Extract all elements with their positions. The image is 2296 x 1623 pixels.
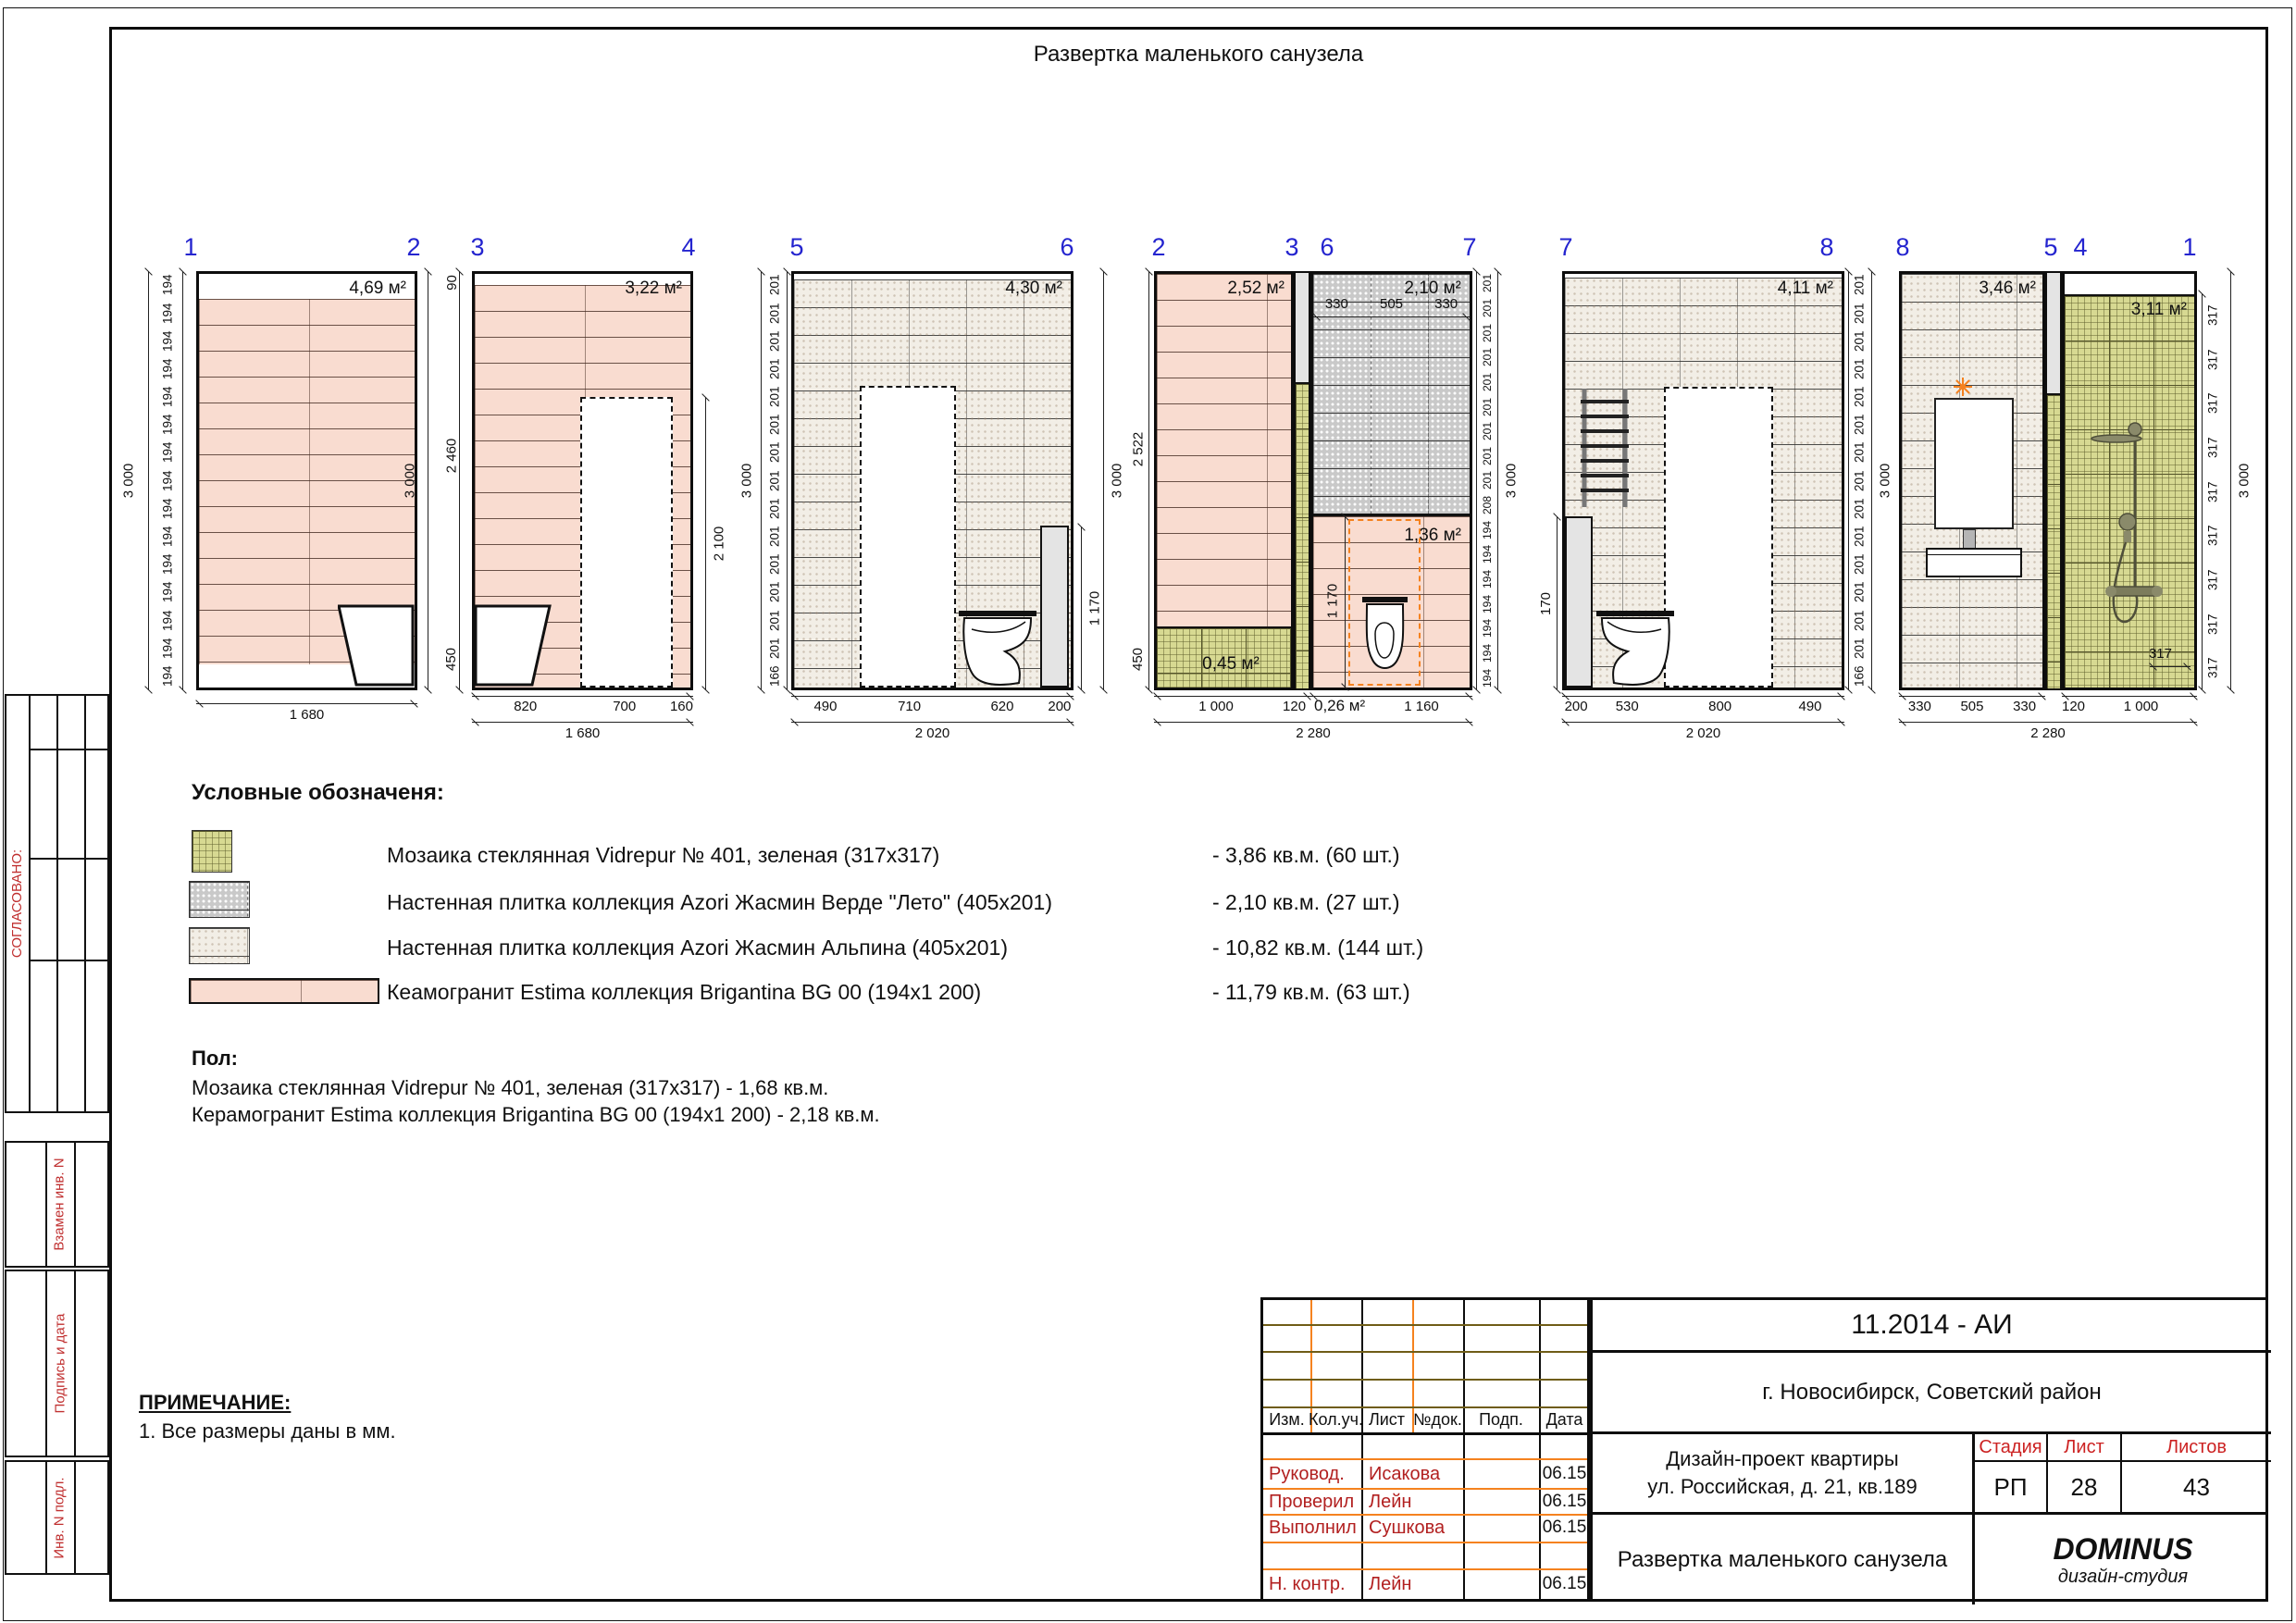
legend-item-qty: - 3,86 кв.м. (60 шт.) — [1212, 843, 1400, 868]
col-header: Лист — [1361, 1406, 1412, 1432]
dim-segments-row: 200 530 800 490 — [1562, 699, 1844, 714]
dim-label: 490 — [791, 699, 860, 714]
dim-segments-row: 120 1 000 — [2062, 699, 2197, 714]
stamp-grid-line — [84, 696, 86, 1111]
axis-label: 1 — [183, 233, 197, 262]
wall-elevation-8-5: 3,46 м² — [1899, 271, 2045, 690]
legend-swatch-mosaic — [192, 830, 232, 873]
axis-label: 8 — [1895, 233, 1909, 262]
dim-total-width: 2 020 — [1562, 725, 1844, 741]
legend-item-qty: - 11,79 кв.м. (63 шт.) — [1212, 980, 1410, 1005]
wall-elevation-7-8: 4,11 м² — [1562, 271, 1844, 690]
doc-code: 11.2014 - АИ — [1593, 1300, 2271, 1353]
basin-edge-line — [1928, 554, 2020, 555]
stage-value: РП — [1975, 1462, 2046, 1512]
titleblock-line-olive — [1263, 1379, 1587, 1381]
wall-elevation-4-1: 3,11 м² 317 — [2062, 271, 2197, 690]
dim-line — [2230, 271, 2231, 690]
stamp-grid-line — [29, 858, 107, 860]
wall-strip-return — [2045, 271, 2062, 690]
stamp-grid-line — [56, 696, 58, 1111]
faucet-icon — [1963, 529, 1976, 550]
tile-fill-mosaic — [2047, 395, 2060, 688]
titleblock-line-orange — [1263, 1458, 1587, 1460]
axis-label: 5 — [789, 233, 803, 262]
dim-label: 2 522 — [1128, 271, 1148, 627]
dim-line — [791, 722, 1074, 723]
axis-label: 4 — [2073, 233, 2087, 262]
dim-label: 330 — [1315, 296, 1359, 312]
stamp-box-label: Инв. N подл. — [45, 1462, 74, 1573]
dim-segments-row: 330 505 330 — [1315, 296, 1468, 312]
dim-segments-row: 1 000 120 — [1154, 699, 1310, 714]
area-label: 3,22 м² — [625, 279, 682, 299]
dim-label: 120 — [1278, 699, 1310, 714]
dim-line — [2202, 293, 2203, 690]
dim-label: 710 — [860, 699, 959, 714]
wall-elevation-1-2: 4,69 м² — [196, 271, 417, 690]
floor-header: Пол: — [192, 1047, 238, 1071]
dim-line — [1313, 316, 1470, 317]
stamp-grid-line — [74, 1462, 76, 1573]
stamp-box-podpis: Подпись и дата — [5, 1270, 109, 1457]
sign-date: 06.15 — [1539, 1518, 1590, 1538]
dim-label: 1 000 — [1154, 699, 1278, 714]
dim-label: 505 — [1941, 699, 2004, 714]
dim-line — [182, 271, 183, 690]
dim-line — [1345, 516, 1346, 688]
dim-label: 820 — [472, 699, 578, 714]
sign-role: Выполнил — [1269, 1518, 1357, 1539]
stamp-grid-line — [29, 960, 107, 961]
sign-role: Н. контр. — [1269, 1574, 1346, 1595]
dim-label: 1 170 — [1322, 516, 1343, 685]
legend-item-label: Кеамогранит Estima коллекция Brigantina … — [387, 980, 981, 1005]
area-label: 4,11 м² — [1778, 279, 1833, 299]
legend-swatch-alpina — [189, 927, 250, 964]
axis-label: 6 — [1060, 233, 1074, 262]
location: г. Новосибирск, Советский район — [1593, 1353, 2271, 1434]
dim-line — [472, 696, 693, 697]
dim-label: 450 — [442, 627, 461, 690]
dim-line — [761, 271, 762, 690]
dim-line — [2150, 666, 2191, 667]
dim-label: 200 — [1046, 699, 1074, 714]
legend-item-qty: - 2,10 кв.м. (27 шт.) — [1212, 890, 1400, 915]
dim-line — [472, 722, 693, 723]
sign-date: 06.15 — [1539, 1464, 1590, 1484]
area-label: 3,11 м² — [2131, 300, 2187, 320]
dim-segments: 2012012012012012012012012012081941941941… — [1479, 271, 1496, 690]
dim-line — [148, 271, 149, 690]
legend-swatch-estima — [189, 978, 379, 1004]
studio-subtitle: дизайн-студия — [2058, 1567, 2188, 1588]
dim-line — [791, 696, 1074, 697]
dim-line — [1154, 696, 1310, 697]
titleblock-line-orange — [1263, 1488, 1587, 1490]
sign-date: 06.15 — [1539, 1574, 1590, 1594]
col-header: Дата — [1539, 1406, 1590, 1432]
axis-label: 3 — [1285, 233, 1298, 262]
col-header: Кол.уч. — [1310, 1406, 1361, 1432]
dim-label: 505 — [1359, 296, 1425, 312]
wall-strip-return — [1294, 271, 1310, 690]
studio-cell: DOMINUS дизайн-студия — [1975, 1515, 2271, 1604]
door-opening — [860, 386, 956, 688]
stage-col-header: Листов — [2122, 1434, 2271, 1462]
dim-line — [2062, 696, 2197, 697]
duct-strip — [2047, 273, 2060, 395]
dim-total-height: 3 000 — [2234, 271, 2254, 690]
axis-label: 8 — [1819, 233, 1833, 262]
dim-label: 317 — [2149, 646, 2172, 662]
stamp-approved-box: СОГЛАСОВАНО: — [5, 694, 109, 1113]
dim-total-height: 3 000 — [1501, 271, 1521, 690]
dim-line — [1871, 271, 1872, 690]
titleblock-line — [2120, 1434, 2122, 1512]
dim-segments: 1941941941941941941941941941941941941941… — [159, 271, 176, 690]
washbasin-icon — [1926, 548, 2022, 577]
duct-panel — [1565, 516, 1593, 688]
approved-label: СОГЛАСОВАНО: — [6, 696, 29, 1111]
dim-label: 1 000 — [2085, 699, 2197, 714]
dim-segments: 2012012012012012012012012012012012012012… — [766, 271, 783, 690]
dim-line — [1899, 722, 2197, 723]
titleblock-line-olive — [1263, 1324, 1587, 1326]
wall-elevation-5-6: 4,30 м² — [791, 271, 1074, 690]
legend-swatch-verde — [189, 881, 250, 918]
wall-elevation-6-7: 2,10 м² 1,36 м² 330 505 330 1 170 — [1310, 271, 1472, 690]
dim-segments: 2012012012012012012012012012012012012012… — [1851, 271, 1868, 690]
dim-label: 490 — [1776, 699, 1844, 714]
wall-hung-toilet-icon — [957, 609, 1038, 687]
dim-label: 2 460 — [442, 284, 461, 627]
studio-name: DOMINUS — [2053, 1532, 2192, 1567]
dim-label: 450 — [1128, 627, 1148, 690]
area-label: 0,45 м² — [1185, 654, 1277, 675]
stamp-box-label: Подпись и дата — [45, 1271, 74, 1456]
axis-label: 4 — [681, 233, 695, 262]
duct-strip — [1296, 273, 1309, 384]
dim-segments-row: 820 700 160 — [472, 699, 693, 714]
dim-label: 530 — [1590, 699, 1664, 714]
dim-total-width: 2 280 — [1154, 725, 1472, 741]
col-header: №док. — [1412, 1406, 1463, 1432]
note-line: 1. Все размеры даны в мм. — [139, 1419, 396, 1443]
project-line: Дизайн-проект квартиры — [1666, 1445, 1898, 1473]
axis-label: 2 — [1151, 233, 1165, 262]
dim-line — [1899, 696, 2045, 697]
stamp-box-label: Взамен инв. N — [45, 1143, 74, 1266]
area-label: 4,30 м² — [1005, 279, 1062, 299]
legend-item-label: Настенная плитка коллекция Azori Жасмин … — [387, 890, 1052, 915]
door-opening — [580, 397, 673, 688]
sheet-name: Развертка маленького санузела — [1593, 1515, 1975, 1604]
titleblock-line — [1361, 1300, 1363, 1599]
dim-total-height: 3 000 — [737, 271, 757, 690]
sign-name: Исакова — [1369, 1464, 1440, 1485]
stamp-grid-line — [29, 696, 31, 1111]
titleblock-line-orange — [1263, 1542, 1587, 1543]
note-header: ПРИМЕЧАНИЕ: — [139, 1391, 291, 1415]
dim-line — [1557, 516, 1558, 690]
dim-duct-height: 170 — [1536, 516, 1557, 690]
titleblock-line — [1463, 1300, 1465, 1599]
dim-label: 620 — [959, 699, 1046, 714]
dim-line — [1081, 527, 1082, 690]
titleblock-line — [1539, 1300, 1541, 1599]
dim-segments: 317317317317317317317317317 — [2204, 293, 2221, 690]
legend-header: Условные обозначеня: — [192, 780, 444, 806]
stamp-grid-line — [74, 1143, 76, 1266]
axis-label: 3 — [470, 233, 484, 262]
titleblock-line-orange — [1263, 1568, 1587, 1570]
duct-panel — [1040, 526, 1069, 688]
dim-label: 120 — [2062, 699, 2085, 714]
dim-line — [196, 703, 417, 704]
towel-radiator-icon — [1579, 387, 1631, 509]
col-header: Подп. — [1463, 1406, 1539, 1432]
dim-line — [1497, 271, 1498, 690]
dim-line — [428, 271, 428, 690]
project-name: Дизайн-проект квартиры ул. Российская, д… — [1593, 1434, 1975, 1512]
dim-label: 1 160 — [1371, 699, 1472, 714]
shower-column-icon — [2091, 420, 2166, 651]
dim-label: 330 — [2004, 699, 2045, 714]
sign-date: 06.15 — [1539, 1492, 1590, 1512]
dim-total-width: 2 020 — [791, 725, 1074, 741]
dim-total-height: 3 000 — [118, 271, 139, 690]
stamp-box-inv: Инв. N подл. — [5, 1460, 109, 1575]
wall-hung-toilet-icon — [1595, 609, 1676, 687]
sheet-number: 28 — [2048, 1462, 2120, 1512]
titleblock-line — [1263, 1432, 1587, 1435]
dim-door-height: 2 100 — [709, 397, 729, 690]
titleblock-left-table: Изм. Кол.уч. Лист №док. Подп. Дата Руков… — [1260, 1297, 1590, 1602]
titleblock-right: 11.2014 - АИ г. Новосибирск, Советский р… — [1590, 1297, 2268, 1602]
stage-col-header: Лист — [2048, 1434, 2120, 1462]
dim-segments-row: 330 505 330 — [1899, 699, 2045, 714]
legend-item-label: Настенная плитка коллекция Azori Жасмин … — [387, 935, 1008, 960]
floor-line: Мозаика стеклянная Vidrepur № 401, зелен… — [192, 1074, 880, 1101]
dim-line — [1154, 722, 1472, 723]
sign-role: Проверил — [1269, 1492, 1354, 1513]
dim-label: 700 — [578, 699, 670, 714]
legend-item-label: Мозаика стеклянная Vidrepur № 401, зелен… — [387, 843, 939, 868]
area-label: 3,46 м² — [1979, 279, 2036, 299]
project-line: ул. Российская, д. 21, кв.189 — [1647, 1473, 1917, 1501]
sign-name: Сушкова — [1369, 1518, 1445, 1539]
legend-item-qty: - 10,82 кв.м. (144 шт.) — [1212, 935, 1423, 960]
dim-duct-height: 1 170 — [1085, 527, 1105, 690]
dim-total-width: 2 280 — [1899, 725, 2197, 741]
sign-name: Лейн — [1369, 1574, 1411, 1595]
sheets-total: 43 — [2122, 1462, 2271, 1512]
col-header: Изм. — [1263, 1406, 1310, 1432]
stamp-grid-line — [74, 1271, 76, 1456]
titleblock-line-orange — [1263, 1514, 1587, 1516]
dim-total-height: 3 000 — [1875, 271, 1895, 690]
wall-elevation-2-3: 2,52 м² 0,45 м² — [1154, 271, 1294, 690]
stamp-grid-line — [29, 749, 107, 750]
axis-label: 1 — [2182, 233, 2196, 262]
tile-fill-mosaic — [1296, 384, 1309, 688]
stamp-box-vzamen: Взамен инв. N — [5, 1141, 109, 1268]
page-title: Развертка маленького санузела — [1034, 42, 1364, 68]
dim-line — [787, 271, 788, 690]
dim-total-height: 3 000 — [1107, 271, 1127, 690]
dim-total-width: 1 680 — [472, 725, 693, 741]
area-label: 0,26 м² — [1314, 697, 1365, 715]
dim-total-height: 3 000 — [400, 271, 420, 690]
axis-label: 5 — [2043, 233, 2057, 262]
dim-label: 330 — [1899, 699, 1941, 714]
area-label: 4,69 м² — [349, 279, 406, 299]
dim-line — [1310, 696, 1472, 697]
dim-line — [1476, 271, 1477, 690]
dim-line — [1103, 271, 1104, 690]
titleblock-line-olive — [1263, 1351, 1587, 1353]
mirror — [1934, 398, 2014, 529]
sign-role: Руковод. — [1269, 1464, 1345, 1485]
dim-line — [1562, 722, 1844, 723]
wall-elevation-3-4: 3,22 м² — [472, 271, 693, 690]
light-icon — [1954, 378, 1972, 396]
tile-fill-estima — [1157, 274, 1291, 628]
dim-line — [705, 397, 706, 690]
area-label: 2,52 м² — [1227, 279, 1285, 299]
floor-lines: Мозаика стеклянная Vidrepur № 401, зелен… — [192, 1074, 880, 1128]
dim-segments-row: 490 710 620 200 — [791, 699, 1074, 714]
dim-line — [1848, 271, 1849, 690]
dim-line — [1562, 696, 1844, 697]
toilet-front-icon — [1359, 597, 1410, 685]
dim-label: 200 — [1562, 699, 1590, 714]
axis-label: 7 — [1558, 233, 1572, 262]
dim-line — [1148, 271, 1149, 690]
dim-label: 330 — [1424, 296, 1468, 312]
toilet-icon — [475, 603, 552, 687]
sign-name: Лейн — [1369, 1492, 1411, 1513]
dim-total-width: 1 680 — [196, 707, 417, 723]
door-opening — [1664, 387, 1773, 688]
stage-col-header: Стадия — [1975, 1434, 2046, 1462]
drawing-sheet: Развертка маленького санузела 1 2 4,69 м… — [0, 0, 2296, 1623]
dim-label: 160 — [670, 699, 693, 714]
titleblock-line — [2046, 1434, 2048, 1512]
dim-label: 800 — [1664, 699, 1776, 714]
floor-line: Керамогранит Estima коллекция Brigantina… — [192, 1101, 880, 1128]
axis-label: 6 — [1320, 233, 1334, 262]
axis-label: 7 — [1462, 233, 1476, 262]
axis-label: 2 — [406, 233, 420, 262]
